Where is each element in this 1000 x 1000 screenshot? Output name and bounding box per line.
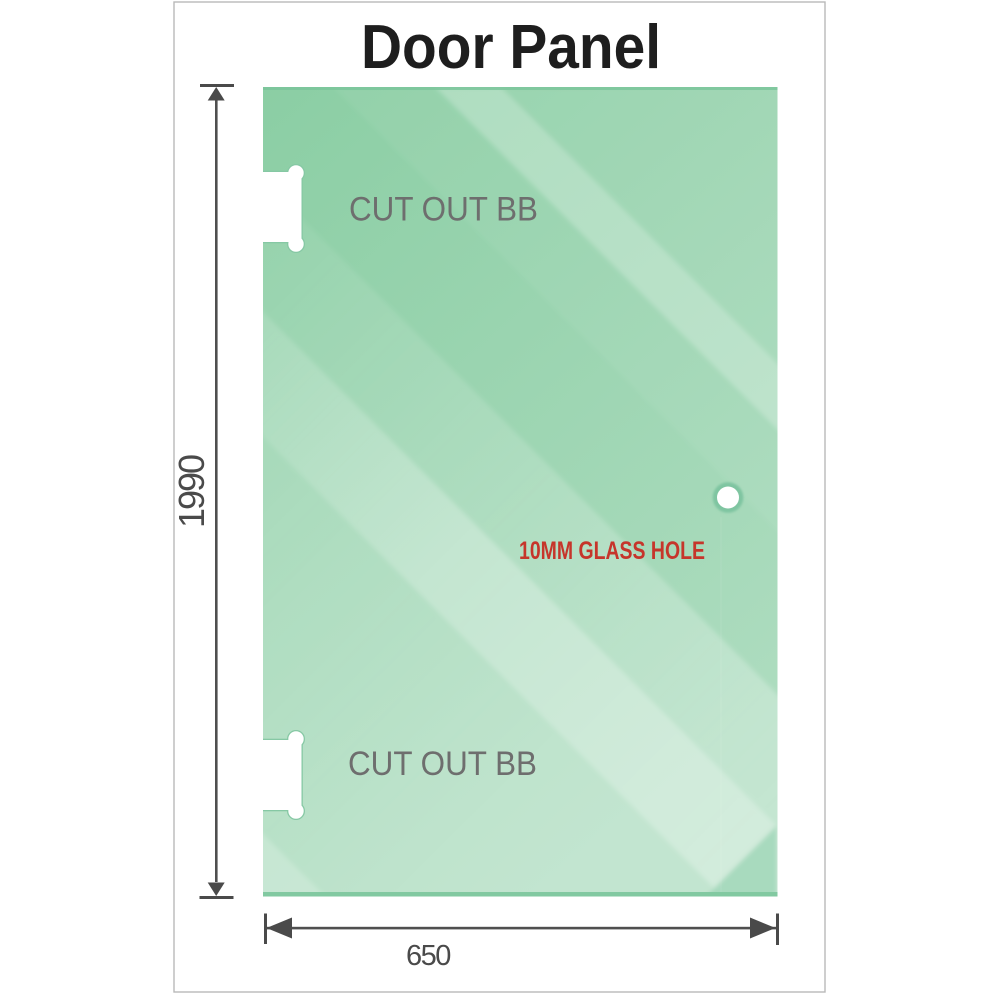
svg-text:CUT OUT BB: CUT OUT BB [349,191,538,229]
svg-text:1990: 1990 [171,455,212,528]
svg-text:Door Panel: Door Panel [361,13,661,82]
svg-text:10MM GLASS HOLE: 10MM GLASS HOLE [519,537,705,565]
svg-text:CUT OUT BB: CUT OUT BB [348,745,537,783]
svg-text:650: 650 [406,940,450,972]
